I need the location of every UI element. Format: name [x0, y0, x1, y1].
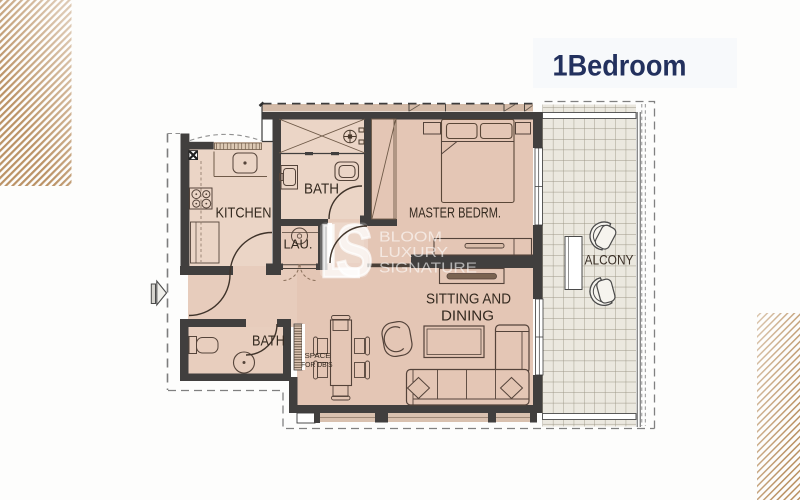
svg-text:S: S	[336, 211, 373, 292]
svg-text:BLOOM: BLOOM	[379, 229, 442, 246]
svg-text:FOR DB'S: FOR DB'S	[301, 360, 333, 369]
svg-text:LUXURY: LUXURY	[379, 244, 448, 261]
svg-text:ALCONY: ALCONY	[585, 252, 635, 268]
svg-text:BATH: BATH	[252, 333, 285, 350]
svg-text:BATH: BATH	[304, 181, 339, 198]
svg-text:1Bedroom: 1Bedroom	[553, 50, 687, 83]
svg-text:MASTER BEDRM.: MASTER BEDRM.	[409, 205, 501, 222]
svg-text:DINING: DINING	[441, 308, 494, 325]
svg-text:KITCHEN: KITCHEN	[216, 205, 272, 222]
svg-text:SIGNATURE: SIGNATURE	[379, 260, 477, 277]
svg-text:SPACE: SPACE	[305, 351, 331, 360]
svg-text:LAU.: LAU.	[284, 237, 313, 252]
svg-text:SITTING AND: SITTING AND	[426, 291, 511, 308]
